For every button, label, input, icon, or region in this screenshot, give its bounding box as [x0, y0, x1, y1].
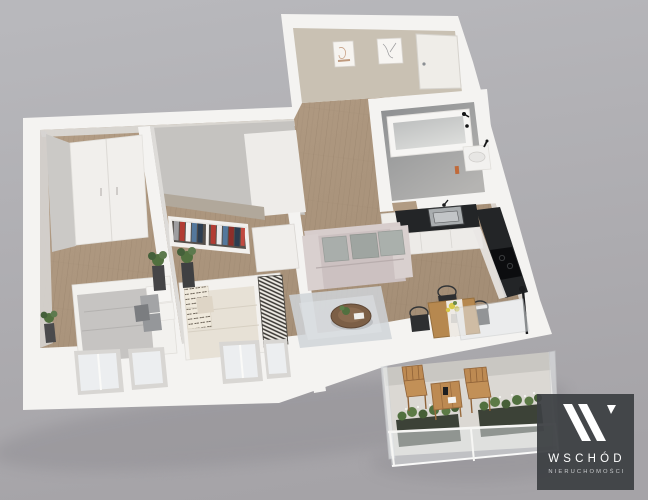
- window: [74, 349, 124, 395]
- brand-name: WSCHÓD: [548, 452, 626, 465]
- brand-tagline: NIERUCHOMOŚCI: [548, 467, 625, 475]
- bathroom: [368, 89, 499, 213]
- bathtub: [387, 109, 473, 157]
- sofa: [302, 222, 413, 291]
- wardrobe: [46, 134, 148, 252]
- balcony: [381, 351, 559, 466]
- towel: [455, 166, 460, 174]
- window: [263, 339, 291, 379]
- floorplan-render: WSCHÓD NIERUCHOMOŚCI: [0, 0, 648, 500]
- window: [219, 340, 263, 384]
- leaning-panel: [252, 224, 299, 272]
- entrance-door: [416, 34, 461, 89]
- entrance-hall: [293, 28, 462, 103]
- window: [128, 347, 168, 390]
- brand-logo: WSCHÓD NIERUCHOMOŚCI: [537, 394, 634, 490]
- door-handle: [422, 62, 425, 65]
- floorplan-canvas: WSCHÓD NIERUCHOMOŚCI: [0, 0, 648, 500]
